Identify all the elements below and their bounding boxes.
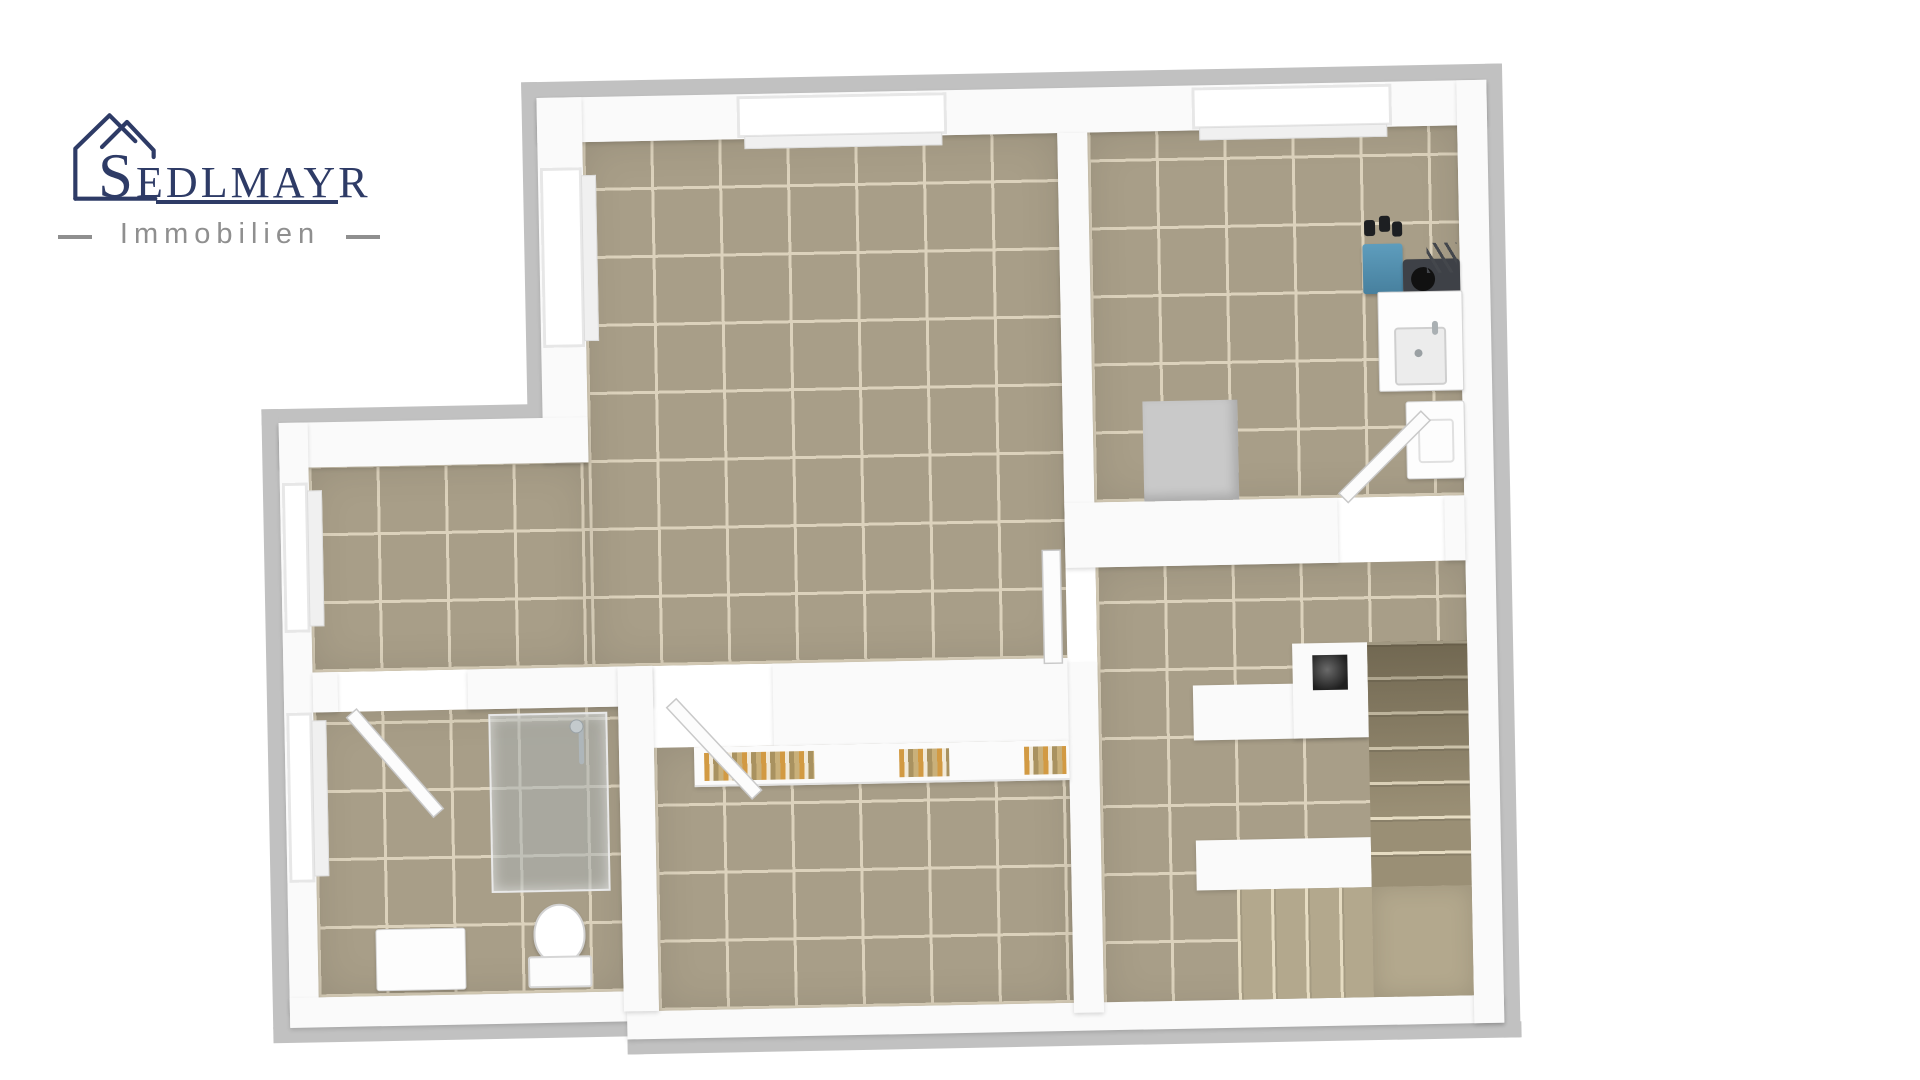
page: SEDLMAYR Immobilien: [0, 0, 1920, 1080]
door-leaf-living-hall: [1042, 550, 1062, 663]
doors-overlay: [0, 0, 1920, 1080]
floor-plan: [0, 0, 1920, 1080]
door-leaf-utility: [1339, 411, 1430, 502]
door-leaf-storage: [667, 699, 762, 799]
door-leaf-bathroom: [347, 709, 444, 817]
